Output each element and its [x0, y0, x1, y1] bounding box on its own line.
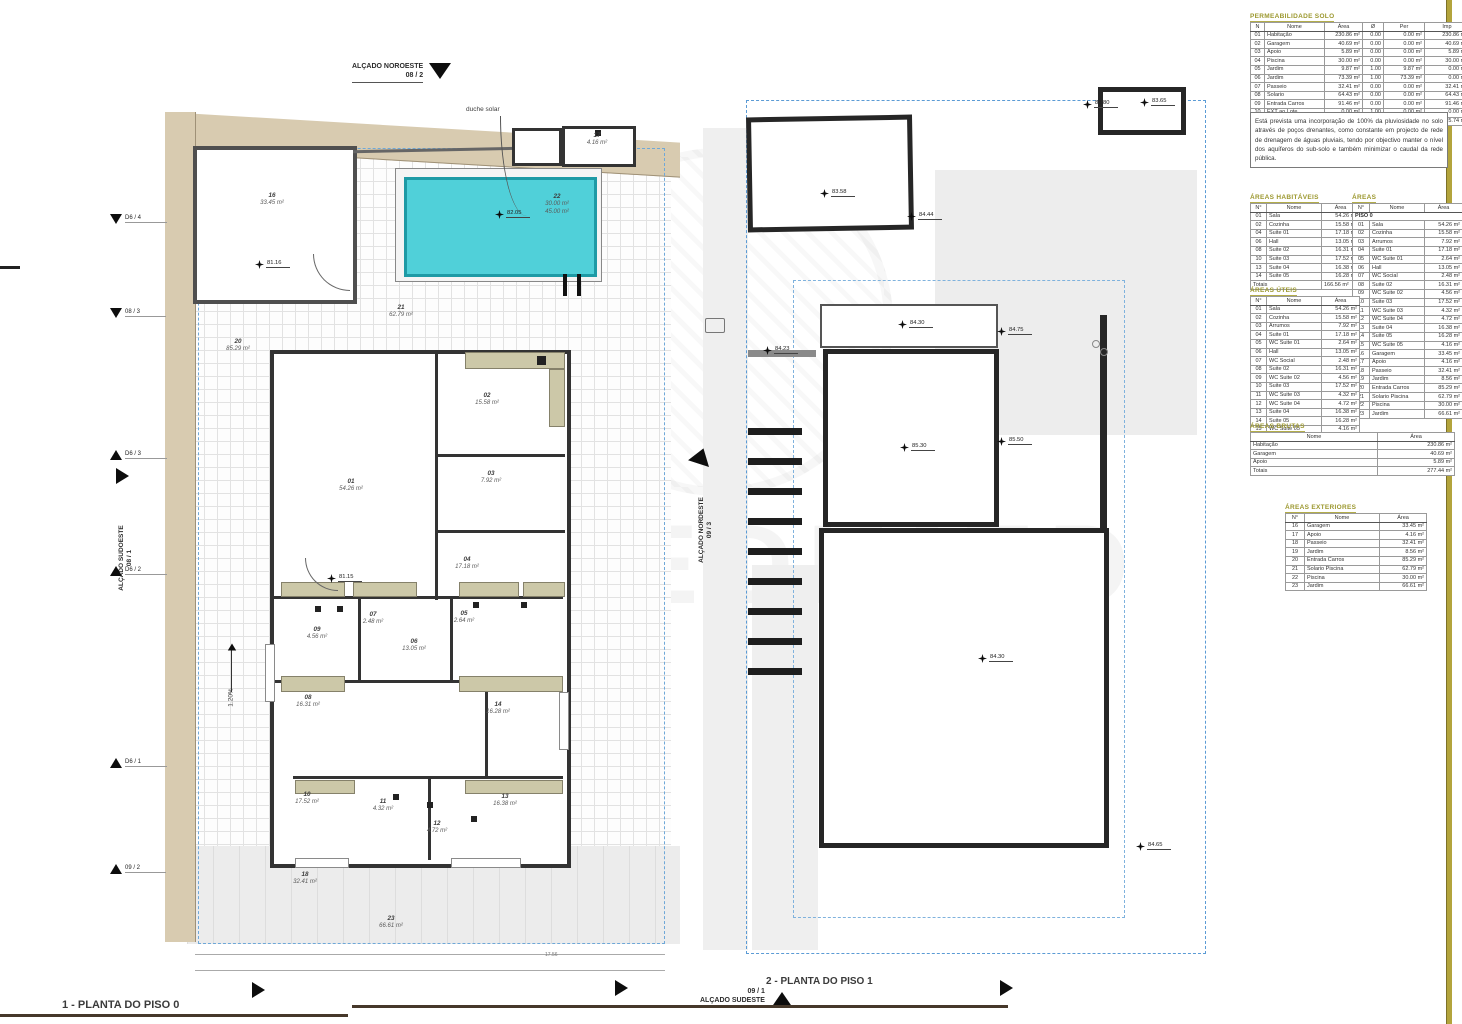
table-cell: 23 — [1286, 582, 1305, 591]
table-cell: WC Suite 04 — [1267, 400, 1322, 409]
dim-triangle-icon — [1000, 980, 1013, 996]
kitchen-appliance — [537, 356, 546, 365]
habitaveis-table: N°NomeÁrea01Sala54.26 m²02Cozinha15.58 m… — [1250, 203, 1360, 290]
drainage-note: Está prevista uma incorporação de 100% d… — [1250, 112, 1448, 168]
wardrobe — [523, 582, 565, 597]
room-area: 17.52 m² — [295, 799, 319, 807]
table-cell: WC Suite 04 — [1370, 315, 1425, 324]
table-cell: 0.00 — [1363, 40, 1384, 49]
room-area: 4.56 m² — [307, 634, 327, 642]
spot-level: 83.80 — [1083, 100, 1118, 109]
table-title-habitaveis: ÁREAS HABITÁVEIS — [1250, 194, 1319, 203]
table-cell: 2.48 m² — [1322, 357, 1360, 366]
table-row: 01Sala54.26 m² — [1251, 305, 1360, 314]
table-cell: Piscina — [1370, 401, 1425, 410]
room-label-06: 0613.05 m² — [402, 638, 426, 654]
room-label-01: 0154.26 m² — [339, 478, 363, 494]
table-cell: WC Suite 02 — [1370, 289, 1425, 298]
table-cell: 1.00 — [1363, 65, 1384, 74]
level-value: 81.15 — [338, 575, 362, 583]
table-row: 14Suite 0516.28 m² — [1353, 332, 1462, 341]
table-cell: Habitação — [1251, 441, 1378, 450]
floor-plan-piso0: 1633.45 m²174.16 m²2230.00 m²45.00 m²216… — [165, 88, 680, 965]
window — [451, 858, 521, 868]
elevation-ref: 09 / 3 — [706, 475, 714, 585]
level-value: 83.65 — [1151, 99, 1175, 107]
room-label-05: 052.64 m² — [454, 610, 474, 626]
table-cell: 4.56 m² — [1425, 289, 1462, 298]
elevation-label-nordeste: ALÇADO NORDESTE 09 / 3 — [698, 475, 714, 585]
table-cell: 4.16 m² — [1425, 341, 1462, 350]
pool-step-post — [563, 274, 567, 296]
level-marker-icon — [327, 574, 336, 583]
table-cell: 40.69 m² — [1378, 450, 1455, 459]
table-cell: 17.52 m² — [1322, 382, 1360, 391]
table-row: 08Solario64.43 m²0.000.00 m²64.43 m² — [1251, 91, 1462, 100]
table-cell: Suite 01 — [1267, 229, 1322, 238]
section-triangle-icon — [110, 758, 122, 768]
table-cell: Habitação — [1265, 31, 1325, 40]
table-cell: 9.87 m² — [1384, 65, 1425, 74]
table-cell: 230.86 m² — [1325, 31, 1363, 40]
level-value: 83.80 — [1094, 101, 1118, 109]
plan0-title: 1 - PLANTA DO PISO 0 — [62, 999, 179, 1011]
stair-slat — [748, 638, 802, 645]
level-value: 84.23 — [774, 347, 798, 355]
table-cell: Suite 01 — [1267, 331, 1322, 340]
table-cell: 16.38 m² — [1322, 408, 1360, 417]
section-label: D6 / 3 — [125, 451, 167, 459]
level-value: 84.65 — [1147, 843, 1171, 851]
table-cell: 05 — [1353, 255, 1370, 264]
table-cell: 01 — [1353, 221, 1370, 230]
column-header: Área — [1425, 204, 1462, 213]
table-cell: 4.72 m² — [1322, 400, 1360, 409]
exteriores-table: N°NomeÁrea16Garagem33.45 m²17Apoio4.16 m… — [1285, 513, 1427, 591]
section-triangle-icon — [110, 864, 122, 874]
table-cell: 7.92 m² — [1425, 238, 1462, 247]
table-cell: Apoio — [1305, 531, 1380, 540]
table-cell: Cozinha — [1267, 221, 1322, 230]
section-marker: D6 / 4 — [110, 214, 167, 224]
table-cell: Sala — [1370, 221, 1425, 230]
table-total-row: Totais277.44 m² — [1251, 467, 1455, 476]
level-marker-icon — [820, 189, 829, 198]
table-title-uteis: ÁREAS ÚTEIS — [1250, 287, 1297, 296]
column-header: Nome — [1251, 433, 1378, 442]
pool-step-post — [577, 274, 581, 296]
table-cell: 07 — [1251, 83, 1265, 92]
room-area: 30.00 m² — [545, 201, 569, 209]
table-row: 05WC Suite 012.64 m² — [1251, 339, 1360, 348]
table-cell: 32.41 m² — [1425, 367, 1462, 376]
wc-fixture — [521, 602, 527, 608]
table-cell: Sala — [1267, 212, 1322, 221]
section-triangle-icon — [110, 214, 122, 224]
table-cell: Suite 02 — [1267, 246, 1322, 255]
section-marker: D6 / 2 — [110, 566, 167, 576]
section-triangle-icon — [110, 308, 122, 318]
table-cell: Passeio — [1305, 539, 1380, 548]
table-cell: WC Suite 03 — [1267, 391, 1322, 400]
table-cell: 07 — [1353, 272, 1370, 281]
table-cell: Piscina — [1305, 574, 1380, 583]
level-marker-icon — [255, 260, 264, 269]
table-cell: 73.39 m² — [1384, 74, 1425, 83]
table-cell: 0.00 m² — [1425, 65, 1462, 74]
room-label-13: 1316.38 m² — [493, 793, 517, 809]
table-cell: 4.32 m² — [1322, 391, 1360, 400]
table-row: 14Suite 0516.28 m² — [1251, 272, 1360, 281]
level-marker-icon — [907, 212, 916, 221]
stair-slat — [748, 668, 802, 675]
room-area: 45.00 m² — [545, 209, 569, 217]
table-cell: 04 — [1251, 229, 1267, 238]
table-cell: 19 — [1286, 548, 1305, 557]
spot-level: 81.16 — [255, 260, 290, 269]
table-cell: 62.79 m² — [1380, 565, 1427, 574]
spot-level: 85.50 — [997, 437, 1032, 446]
table-cell: 06 — [1251, 74, 1265, 83]
table-cell: 03 — [1251, 322, 1267, 331]
partition-wall — [450, 596, 453, 683]
table-cell: 17 — [1286, 531, 1305, 540]
column-header: Área — [1325, 23, 1363, 32]
stair-slat — [748, 608, 802, 615]
room-area: 17.18 m² — [455, 564, 479, 572]
table-cell: 04 — [1251, 331, 1267, 340]
table-cell: 5.89 m² — [1325, 48, 1363, 57]
spot-level: 84.30 — [978, 654, 1013, 663]
swimming-pool — [404, 177, 597, 277]
table-row: 04Suite 0117.18 m² — [1353, 246, 1462, 255]
table-cell: 13.05 m² — [1322, 348, 1360, 357]
room-label-10: 1017.52 m² — [295, 791, 319, 807]
table-group-row: PISO 0 — [1353, 212, 1462, 221]
spot-level: 84.44 — [907, 212, 942, 221]
table-cell: 15.58 m² — [1322, 314, 1360, 323]
room-area: 16.28 m² — [486, 709, 510, 717]
spot-level: 82.05 — [495, 210, 530, 219]
permeabilidade-table: NNomeÁreaØPerImp01Habitação230.86 m²0.00… — [1250, 22, 1462, 126]
level-marker-icon — [1083, 100, 1092, 109]
table-cell: 230.86 m² — [1425, 31, 1462, 40]
table-cell: 03 — [1251, 48, 1265, 57]
table-cell: 05 — [1251, 339, 1267, 348]
kitchen-counter — [549, 369, 565, 427]
level-value: 84.30 — [989, 655, 1013, 663]
uteis-table: N°NomeÁrea01Sala54.26 m²02Cozinha15.58 m… — [1250, 296, 1360, 443]
table-cell: 4.16 m² — [1425, 358, 1462, 367]
areas-piso0-table: N°NomeÁreaPISO 001Sala54.26 m²02Cozinha1… — [1352, 203, 1462, 419]
table-cell: 230.86 m² — [1378, 441, 1455, 450]
roof-outline-upper — [823, 349, 999, 527]
table-cell: 0.00 — [1363, 48, 1384, 57]
table-cell: 0.00 — [1363, 57, 1384, 66]
section-label: 09 / 2 — [125, 865, 166, 873]
table-row: 21Solario Piscina62.79 m² — [1286, 565, 1427, 574]
table-row: 03Apoio5.89 m²0.000.00 m²5.89 m² — [1251, 48, 1462, 57]
room-number: 01 — [339, 478, 363, 486]
table-row: 18Passeio32.41 m² — [1286, 539, 1427, 548]
table-cell: 21 — [1286, 565, 1305, 574]
room-area: 7.92 m² — [481, 478, 501, 486]
table-row: 02Cozinha15.58 m² — [1353, 229, 1462, 238]
table-row: 01Habitação230.86 m²0.000.00 m²230.86 m² — [1251, 31, 1462, 40]
table-header-row: N°NomeÁrea — [1286, 514, 1427, 523]
slope-arrow-line — [231, 650, 232, 692]
table-cell: 0.00 — [1363, 100, 1384, 109]
table-cell: Jardim — [1265, 74, 1325, 83]
table-cell: 17.18 m² — [1425, 246, 1462, 255]
room-number: 17 — [587, 132, 607, 140]
table-row: 20Entrada Carros85.29 m² — [1286, 556, 1427, 565]
section-marker: 08 / 3 — [110, 308, 166, 318]
table-cell: Entrada Carros — [1265, 100, 1325, 109]
column-header: Imp — [1425, 23, 1462, 32]
table-cell: 5.89 m² — [1378, 458, 1455, 467]
table-cell: 02 — [1251, 40, 1265, 49]
table-cell: 04 — [1251, 57, 1265, 66]
table-cell: 66.61 m² — [1380, 582, 1427, 591]
table-row: 06Hall13.05 m² — [1251, 238, 1360, 247]
level-marker-icon — [997, 437, 1006, 446]
table-row: 22Piscina30.00 m² — [1286, 574, 1427, 583]
table-cell: 91.46 m² — [1425, 100, 1462, 109]
room-number: 06 — [402, 638, 426, 646]
table-cell: 16.31 m² — [1425, 281, 1462, 290]
table-cell: 4.16 m² — [1380, 531, 1427, 540]
level-value: 81.16 — [266, 261, 290, 269]
table-row: 07WC Social2.48 m² — [1353, 272, 1462, 281]
table-cell: 1.00 — [1363, 74, 1384, 83]
table-cell: Jardim — [1305, 582, 1380, 591]
elevation-name: ALÇADO SUDOESTE — [118, 478, 126, 638]
partition-wall — [358, 596, 361, 683]
room-label-09: 094.56 m² — [307, 626, 327, 642]
roof-outline-main — [819, 528, 1109, 848]
dim-triangle-icon — [615, 980, 628, 996]
column-header: Nome — [1267, 297, 1322, 306]
level-marker-icon — [978, 654, 987, 663]
table-cell: 4.56 m² — [1322, 374, 1360, 383]
table-cell: Apoio — [1265, 48, 1325, 57]
spot-level: 85.30 — [900, 443, 935, 452]
room-number: 02 — [475, 392, 499, 400]
partition-wall — [428, 776, 431, 860]
table-row: 13Suite 0416.38 m² — [1353, 324, 1462, 333]
room-area: 85.29 m² — [226, 346, 250, 354]
wc-fixture — [315, 606, 321, 612]
room-number: 14 — [486, 701, 510, 709]
table-cell: Garagem — [1265, 40, 1325, 49]
table-header-row: N°NomeÁrea — [1251, 297, 1360, 306]
table-cell: 05 — [1251, 65, 1265, 74]
table-row: 10Suite 0317.52 m² — [1251, 255, 1360, 264]
table-title-areas: ÁREAS — [1352, 194, 1376, 203]
table-cell: Hall — [1370, 264, 1425, 273]
room-number: 09 — [307, 626, 327, 634]
room-label-16: 1633.45 m² — [260, 192, 284, 208]
table-cell: 08 — [1353, 281, 1370, 290]
table-row: 04Suite 0117.18 m² — [1251, 331, 1360, 340]
table-row: 17Apoio4.16 m² — [1286, 531, 1427, 540]
dimension-text: 17.56 — [545, 952, 558, 958]
level-marker-icon — [997, 327, 1006, 336]
table-cell: 62.79 m² — [1425, 393, 1462, 402]
room-number: 23 — [379, 915, 403, 923]
table-cell: Suite 03 — [1267, 255, 1322, 264]
wardrobe — [459, 582, 519, 597]
level-value: 83.58 — [831, 190, 855, 198]
table-cell: Passeio — [1370, 367, 1425, 376]
title-rule — [352, 1005, 1008, 1008]
table-cell: 03 — [1353, 238, 1370, 247]
column-header: Área — [1378, 433, 1455, 442]
table-cell: 32.41 m² — [1425, 83, 1462, 92]
elevation-label-sudoeste: ALÇADO SUDOESTE 08 / 1 — [118, 478, 134, 638]
table-cell: 14 — [1251, 272, 1267, 281]
table-cell: 66.61 m² — [1425, 410, 1462, 419]
window — [559, 692, 569, 750]
elevation-name: ALÇADO NORDESTE — [698, 475, 706, 585]
table-cell: Entrada Carros — [1305, 556, 1380, 565]
table-row: 21Solario Piscina62.79 m² — [1353, 393, 1462, 402]
table-cell: 12 — [1251, 400, 1267, 409]
table-cell: 5.89 m² — [1425, 48, 1462, 57]
partition-wall — [435, 454, 565, 457]
table-cell: 32.41 m² — [1325, 83, 1363, 92]
table-row: 09WC Suite 024.56 m² — [1251, 374, 1360, 383]
table-row: 12WC Suite 044.72 m² — [1353, 315, 1462, 324]
table-cell: 33.45 m² — [1380, 522, 1427, 531]
roof-outline-annex — [1098, 87, 1186, 135]
room-label-11: 114.32 m² — [373, 798, 393, 814]
window — [295, 858, 349, 868]
table-cell: Passeio — [1265, 83, 1325, 92]
table-cell: 0.00 — [1363, 83, 1384, 92]
level-marker-icon — [1140, 98, 1149, 107]
table-cell: 02 — [1251, 314, 1267, 323]
section-marker: D6 / 1 — [110, 758, 167, 768]
room-area: 2.64 m² — [454, 618, 474, 626]
room-area: 4.72 m² — [427, 828, 447, 836]
table-cell: Suite 04 — [1267, 264, 1322, 273]
room-area: 15.58 m² — [475, 400, 499, 408]
table-cell: 16 — [1286, 522, 1305, 531]
spot-level: 83.65 — [1140, 98, 1175, 107]
table-row: 03Arrumos7.92 m² — [1251, 322, 1360, 331]
wc-fixture — [427, 802, 433, 808]
level-value: 84.44 — [918, 213, 942, 221]
table-row: 08Suite 0216.31 m² — [1251, 365, 1360, 374]
column-header: N° — [1251, 204, 1267, 213]
partition-wall — [485, 680, 488, 779]
column-header: Nome — [1305, 514, 1380, 523]
table-row: 02Cozinha15.58 m² — [1251, 314, 1360, 323]
section-label: D6 / 4 — [125, 215, 167, 223]
table-cell: WC Suite 01 — [1267, 339, 1322, 348]
spot-level: 84.65 — [1136, 842, 1171, 851]
table-cell: Garagem — [1370, 350, 1425, 359]
partition-wall — [435, 350, 438, 600]
room-label-03: 037.92 m² — [481, 470, 501, 486]
table-cell: Jardim — [1265, 65, 1325, 74]
room-area: 32.41 m² — [293, 879, 317, 887]
table-row: Apoio5.89 m² — [1251, 458, 1455, 467]
slope-label: 1.20% — [228, 688, 235, 706]
table-cell: 06 — [1251, 238, 1267, 247]
plan1-title: 2 - PLANTA DO PISO 1 — [766, 976, 873, 987]
table-cell: 64.43 m² — [1425, 91, 1462, 100]
column-header: N° — [1353, 204, 1370, 213]
spot-level: 84.75 — [997, 327, 1032, 336]
stair-slat — [748, 518, 802, 525]
dimension-line — [195, 954, 665, 955]
table-row: 02Garagem40.69 m²0.000.00 m²40.69 m² — [1251, 40, 1462, 49]
table-cell: 16.38 m² — [1425, 324, 1462, 333]
table-row: 23Jardim66.61 m² — [1353, 410, 1462, 419]
table-cell: Suite 01 — [1370, 246, 1425, 255]
column-header: Nome — [1265, 23, 1325, 32]
section-marker: D6 / 3 — [110, 450, 167, 460]
stair-slat — [748, 548, 802, 555]
table-cell: Entrada Carros — [1370, 384, 1425, 393]
table-cell: 16.31 m² — [1322, 365, 1360, 374]
room-label-04: 0417.18 m² — [455, 556, 479, 572]
room-number: 05 — [454, 610, 474, 618]
room-label-22: 2230.00 m²45.00 m² — [545, 193, 569, 217]
drawing-sheet: PREDIMED — [0, 0, 1462, 1024]
table-cell: 0.00 m² — [1384, 40, 1425, 49]
table-row: 12WC Suite 044.72 m² — [1251, 400, 1360, 409]
table-cell: 85.29 m² — [1425, 384, 1462, 393]
table-cell: 0.00 — [1363, 31, 1384, 40]
kitchen-counter — [465, 352, 565, 369]
room-label-21: 2162.79 m² — [389, 304, 413, 320]
window — [265, 644, 275, 702]
table-cell: 17.52 m² — [1425, 298, 1462, 307]
duche-solar-label: duche solar — [466, 106, 500, 113]
room-number: 08 — [296, 694, 320, 702]
table-cell: 02 — [1353, 229, 1370, 238]
table-cell: 2.64 m² — [1425, 255, 1462, 264]
table-cell: Jardim — [1370, 375, 1425, 384]
spot-level: 84.30 — [898, 320, 933, 329]
room-area: 62.79 m² — [389, 312, 413, 320]
level-value: 84.30 — [909, 321, 933, 329]
room-number: 03 — [481, 470, 501, 478]
wardrobe — [465, 780, 563, 794]
table-cell: 15.58 m² — [1425, 229, 1462, 238]
table-row: 05WC Suite 012.64 m² — [1353, 255, 1462, 264]
table-cell: 22 — [1286, 574, 1305, 583]
table-cell: 30.00 m² — [1425, 57, 1462, 66]
table-cell: 09 — [1251, 374, 1267, 383]
table-cell: 40.69 m² — [1425, 40, 1462, 49]
table-row: 04Piscina30.00 m²0.000.00 m²30.00 m² — [1251, 57, 1462, 66]
table-cell: Solario — [1265, 91, 1325, 100]
table-row: 06Hall13.05 m² — [1353, 264, 1462, 273]
column-header: Nome — [1370, 204, 1425, 213]
table-cell: 32.41 m² — [1380, 539, 1427, 548]
table-cell: 01 — [1251, 31, 1265, 40]
elevation-triangle-icon — [429, 63, 451, 79]
table-cell: Garagem — [1305, 522, 1380, 531]
table-cell: 277.44 m² — [1378, 467, 1455, 476]
table-row: 03Arrumos7.92 m² — [1353, 238, 1462, 247]
level-marker-icon — [898, 320, 907, 329]
